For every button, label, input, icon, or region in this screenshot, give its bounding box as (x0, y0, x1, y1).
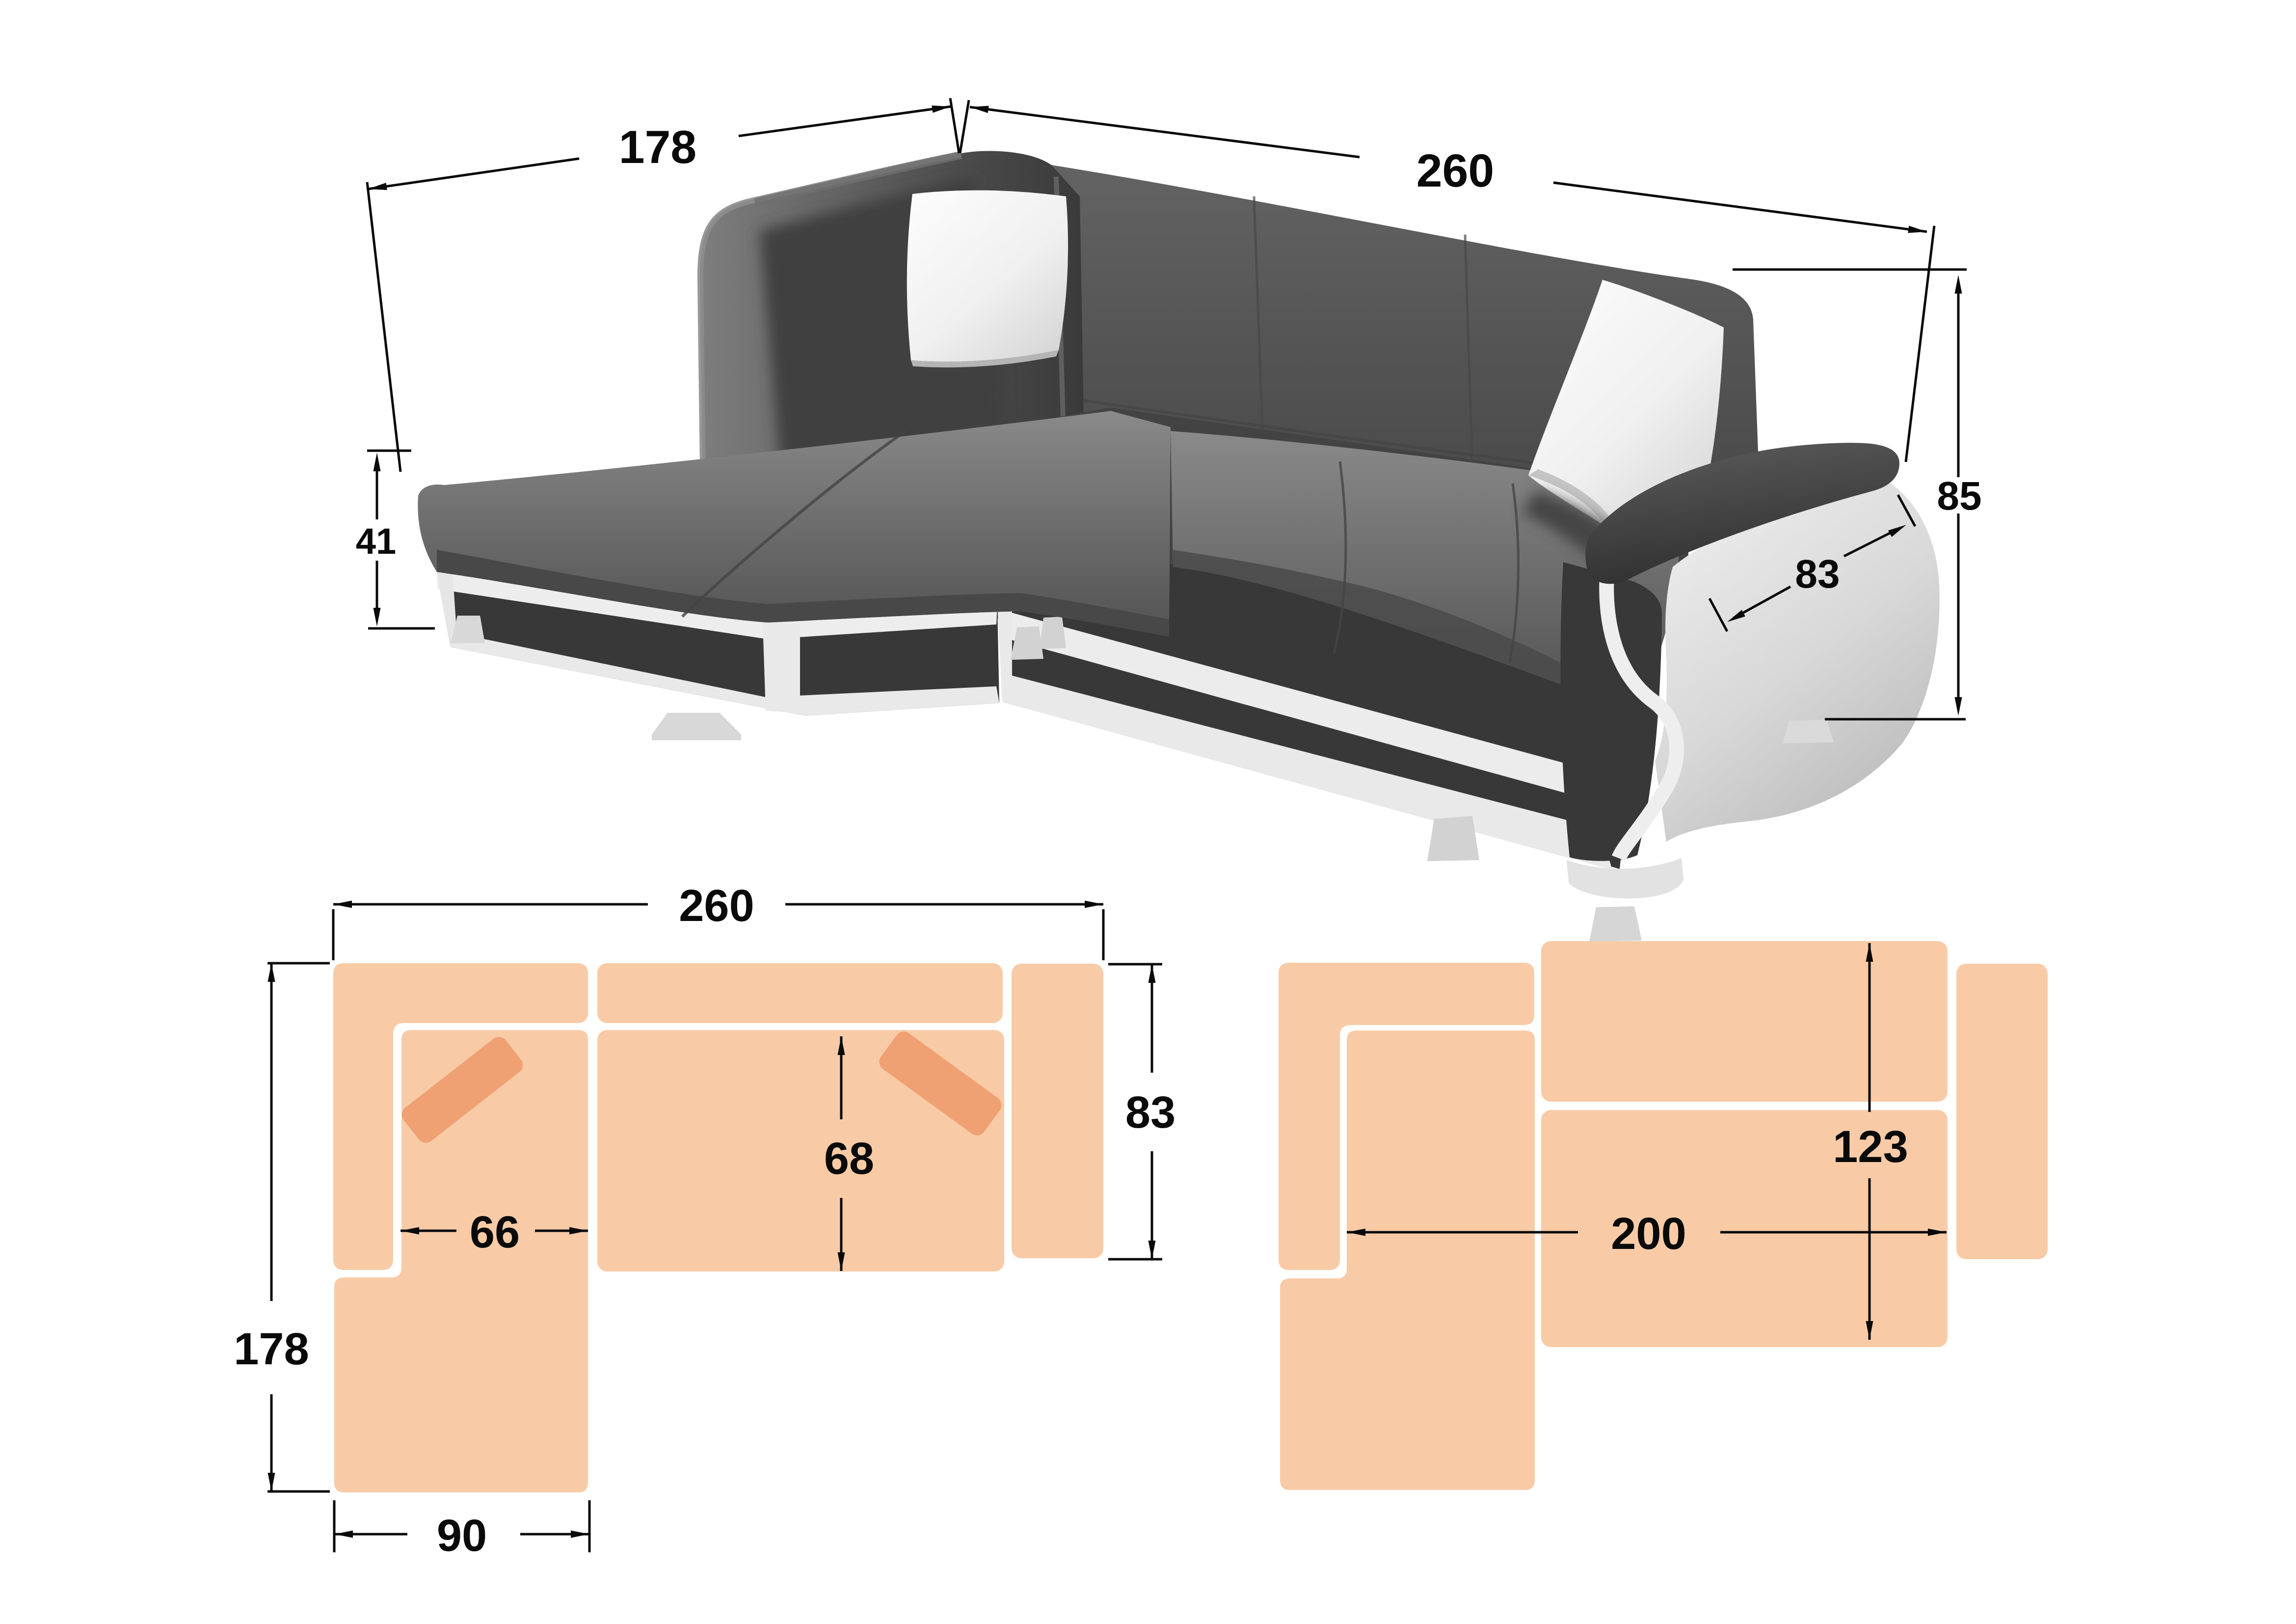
svg-text:178: 178 (619, 121, 697, 173)
svg-text:123: 123 (1833, 1122, 1908, 1172)
svg-text:90: 90 (437, 1511, 487, 1561)
svg-text:260: 260 (679, 881, 754, 931)
svg-text:200: 200 (1611, 1209, 1686, 1259)
svg-text:178: 178 (234, 1324, 309, 1374)
svg-text:41: 41 (356, 521, 396, 562)
svg-text:85: 85 (1937, 474, 1981, 518)
svg-text:68: 68 (824, 1134, 874, 1184)
svg-text:83: 83 (1795, 552, 1840, 596)
svg-text:66: 66 (470, 1207, 520, 1257)
svg-text:260: 260 (1416, 145, 1495, 197)
svg-text:83: 83 (1125, 1087, 1175, 1137)
